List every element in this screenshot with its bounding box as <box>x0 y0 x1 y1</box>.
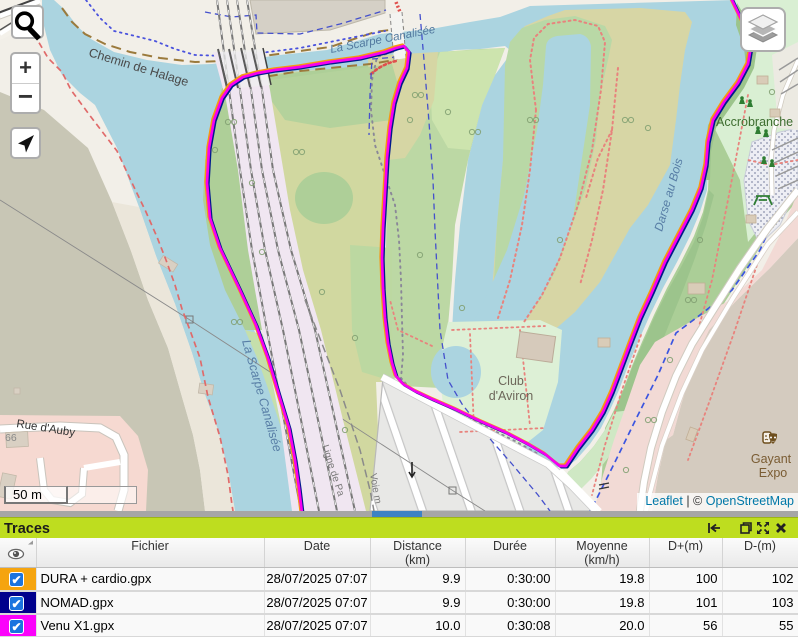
svg-text:d'Aviron: d'Aviron <box>489 389 534 403</box>
svg-text:Gayant: Gayant <box>751 452 792 466</box>
svg-text:Accrobranche: Accrobranche <box>716 115 793 129</box>
svg-text:Expo: Expo <box>759 466 788 480</box>
svg-text:66: 66 <box>5 432 17 444</box>
svg-text:Club: Club <box>498 374 524 388</box>
